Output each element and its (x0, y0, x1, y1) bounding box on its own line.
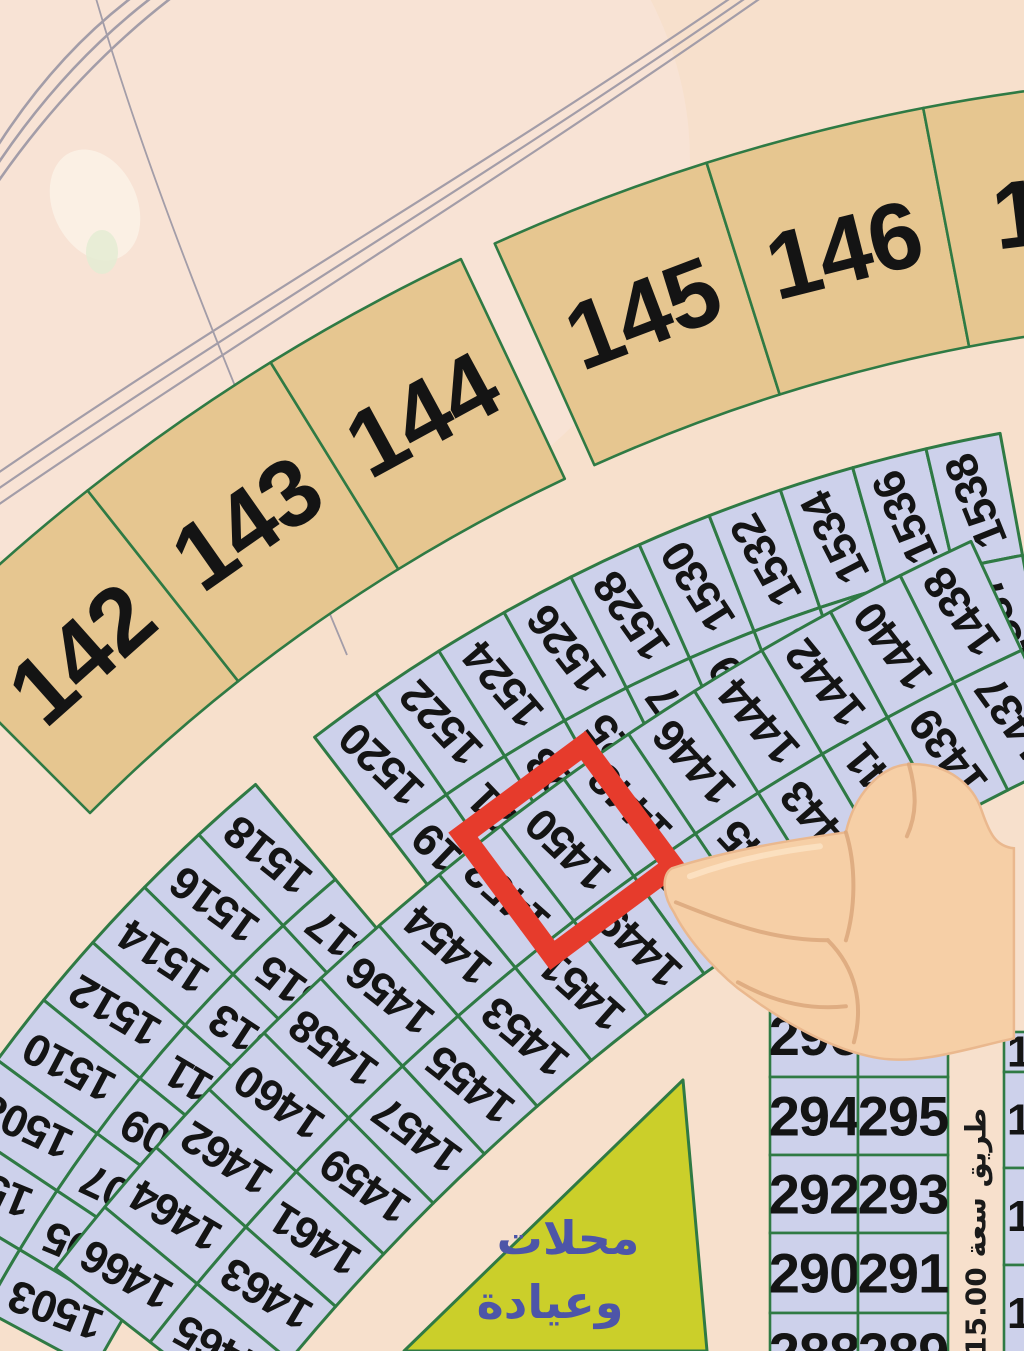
plot-number-294: 294 (769, 1085, 860, 1148)
plot-number-289: 289 (858, 1321, 948, 1351)
plot-number-295: 295 (858, 1085, 948, 1148)
plot-number-291: 291 (858, 1242, 948, 1305)
map-viewport: 1421431441451461471520151915221521152415… (0, 0, 1024, 1351)
partial-plot-number: 13 (1007, 1192, 1024, 1241)
map-green-patch (86, 230, 118, 274)
triangle-label-line1: محلات (497, 1211, 640, 1265)
plot-number-293: 293 (858, 1163, 948, 1226)
plot-number-292: 292 (769, 1163, 859, 1226)
right-edge-plot-column: 1131313 (1004, 1028, 1024, 1351)
plot-map-image: 1421431441451461471520151915221521152415… (0, 0, 1024, 1351)
triangle-plot-number: 1543 (470, 1339, 671, 1351)
plot-number-288: 288 (769, 1321, 859, 1351)
plot-number-290: 290 (769, 1242, 859, 1305)
road-width-label: طريق سعة 15.00 م (960, 1108, 993, 1351)
partial-plot-number: 13 (1007, 1096, 1024, 1145)
triangle-label-line2: وعيادة (477, 1275, 624, 1329)
partial-plot-number: 13 (1007, 1289, 1024, 1338)
